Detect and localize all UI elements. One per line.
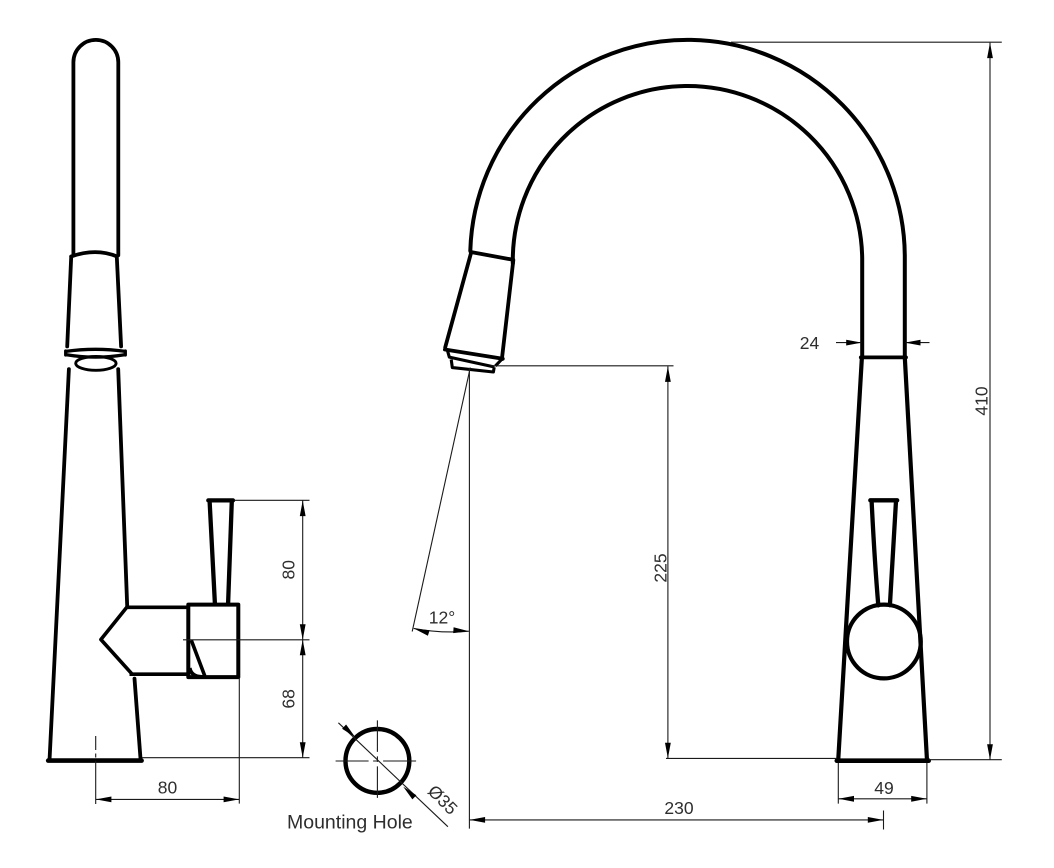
svg-text:230: 230 (664, 798, 693, 818)
svg-text:24: 24 (800, 333, 820, 353)
svg-text:12°: 12° (429, 608, 455, 628)
svg-text:80: 80 (279, 560, 299, 580)
svg-text:68: 68 (279, 689, 299, 708)
svg-text:80: 80 (158, 778, 178, 798)
svg-text:49: 49 (874, 778, 893, 798)
svg-text:410: 410 (972, 386, 992, 415)
svg-text:225: 225 (651, 553, 671, 582)
svg-text:Mounting Hole: Mounting Hole (287, 812, 413, 834)
